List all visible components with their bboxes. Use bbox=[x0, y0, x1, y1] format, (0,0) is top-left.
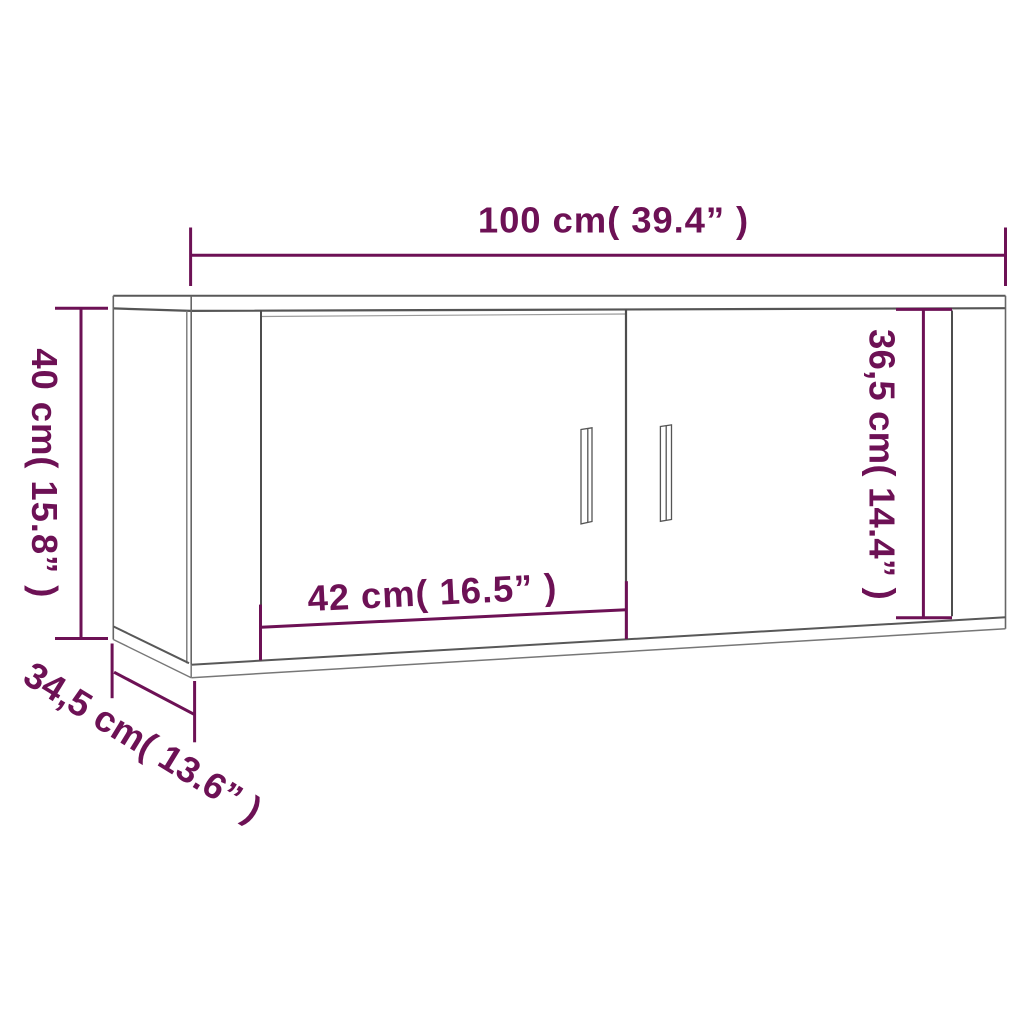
svg-text:100 cm( 39.4” ): 100 cm( 39.4” ) bbox=[478, 199, 749, 240]
svg-text:42 cm( 16.5” ): 42 cm( 16.5” ) bbox=[307, 566, 559, 619]
svg-text:36,5 cm( 14.4” ): 36,5 cm( 14.4” ) bbox=[862, 329, 903, 600]
svg-text:40 cm( 15.8” ): 40 cm( 15.8” ) bbox=[24, 348, 65, 598]
svg-text:34,5 cm( 13.6” ): 34,5 cm( 13.6” ) bbox=[17, 654, 270, 831]
